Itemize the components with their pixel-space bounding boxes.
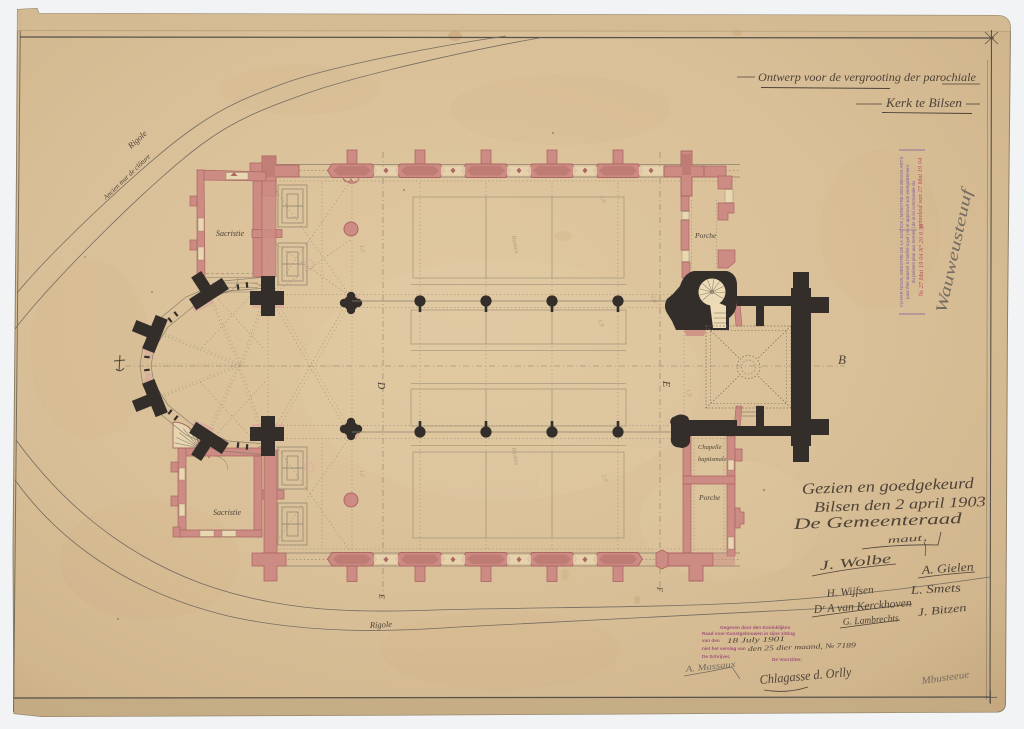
- svg-text:De Voorzitter,: De Voorzitter,: [772, 657, 802, 662]
- svg-text:№ 27 Mai 19 04 N° 20 9 36: № 27 Mai 19 04 N° 20 9 36: [918, 223, 925, 297]
- svg-text:E: E: [660, 380, 671, 387]
- svg-text:du présent plan aux termes | d: du présent plan aux termes | de la loi c…: [911, 180, 916, 282]
- svg-text:Ontwerp voor de vergrooting de: Ontwerp voor de vergrooting der parochia…: [758, 70, 977, 84]
- svg-text:niet het verslag van: niet het verslag van: [702, 646, 746, 651]
- svg-text:Porche: Porche: [694, 231, 717, 240]
- svg-text:geteeknd van 27 Mai 19 04: geteeknd van 27 Mai 19 04: [917, 157, 924, 228]
- svg-text:L. Smets: L. Smets: [909, 580, 961, 597]
- svg-text:B: B: [838, 352, 846, 367]
- svg-text:Sacristie: Sacristie: [213, 508, 241, 517]
- svg-text:Kerk te Bilsen: Kerk te Bilsen: [885, 95, 962, 110]
- svg-text:Porche: Porche: [698, 493, 721, 502]
- svg-text:Gegeven door den Koninklijk: Gegeven door den Koninklijken: [720, 625, 790, 630]
- svg-text:VU PAR NOUS, MINISTRE DE LA JU: VU PAR NOUS, MINISTRE DE LA JUSTICE | MI…: [899, 157, 904, 308]
- svg-text:van den: van den: [702, 638, 720, 643]
- svg-text:1,2: 1,2: [358, 244, 365, 252]
- svg-text:De Schrijver,: De Schrijver,: [702, 654, 730, 659]
- svg-text:F: F: [655, 586, 664, 592]
- svg-text:Sacristie: Sacristie: [216, 229, 244, 238]
- svg-text:E: E: [377, 593, 386, 599]
- svg-text:1,2: 1,2: [358, 469, 365, 477]
- svg-text:Rigole: Rigole: [369, 619, 393, 630]
- svg-text:pour être annexé à l’arrêté ro: pour être annexé à l’arrêté royal | vu e…: [905, 164, 910, 298]
- svg-text:D: D: [375, 381, 386, 390]
- svg-text:baptismale: baptismale: [698, 456, 727, 463]
- svg-text:Chapelle: Chapelle: [698, 444, 722, 451]
